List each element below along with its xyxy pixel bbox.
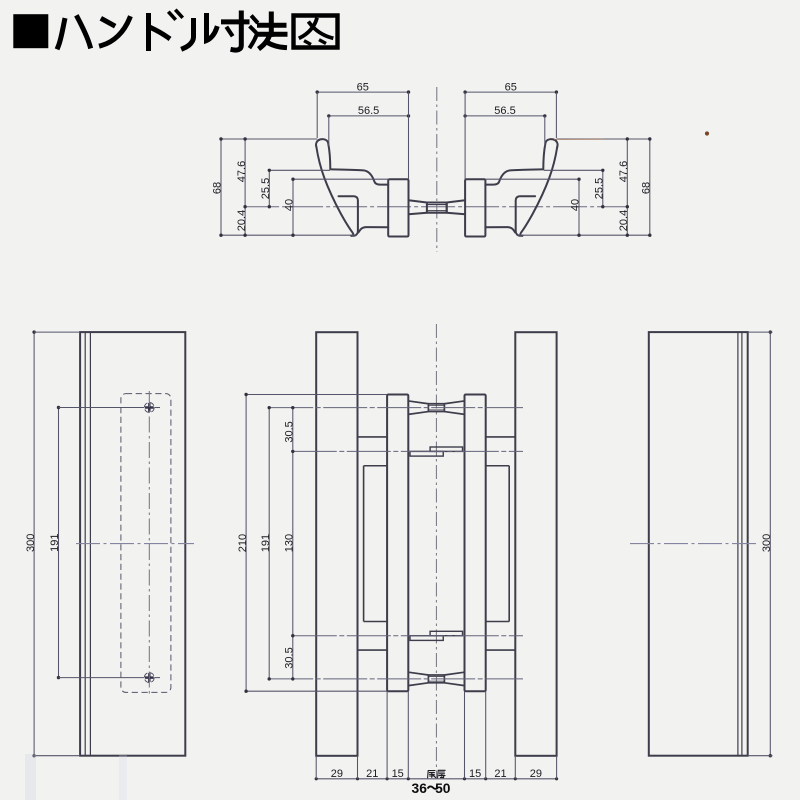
svg-text:130: 130 — [284, 534, 296, 552]
svg-text:20.4: 20.4 — [236, 210, 248, 231]
svg-text:40: 40 — [570, 199, 582, 211]
svg-text:191: 191 — [260, 534, 272, 552]
svg-text:300: 300 — [25, 534, 37, 552]
svg-text:30.5: 30.5 — [283, 421, 295, 442]
svg-text:21: 21 — [366, 768, 378, 780]
svg-text:15: 15 — [469, 768, 481, 780]
svg-text:210: 210 — [237, 534, 249, 552]
svg-text:56.5: 56.5 — [494, 105, 515, 117]
svg-text:47.6: 47.6 — [236, 161, 248, 182]
svg-text:47.6: 47.6 — [618, 161, 630, 182]
svg-text:20.4: 20.4 — [618, 210, 630, 231]
svg-text:68: 68 — [641, 182, 653, 194]
svg-text:65: 65 — [357, 81, 369, 93]
svg-text:21: 21 — [494, 768, 506, 780]
svg-text:15: 15 — [392, 768, 404, 780]
svg-text:40: 40 — [284, 199, 296, 211]
svg-text:56.5: 56.5 — [358, 105, 379, 117]
svg-text:29: 29 — [331, 768, 343, 780]
svg-text:65: 65 — [505, 81, 517, 93]
svg-text:191: 191 — [49, 534, 61, 552]
svg-text:68: 68 — [212, 182, 224, 194]
svg-text:36: 36 — [412, 781, 428, 796]
svg-text:29: 29 — [530, 768, 542, 780]
svg-text:30.5: 30.5 — [283, 647, 295, 668]
svg-text:300: 300 — [761, 534, 773, 552]
svg-text:25.5: 25.5 — [260, 178, 272, 199]
svg-text:25.5: 25.5 — [594, 178, 606, 199]
